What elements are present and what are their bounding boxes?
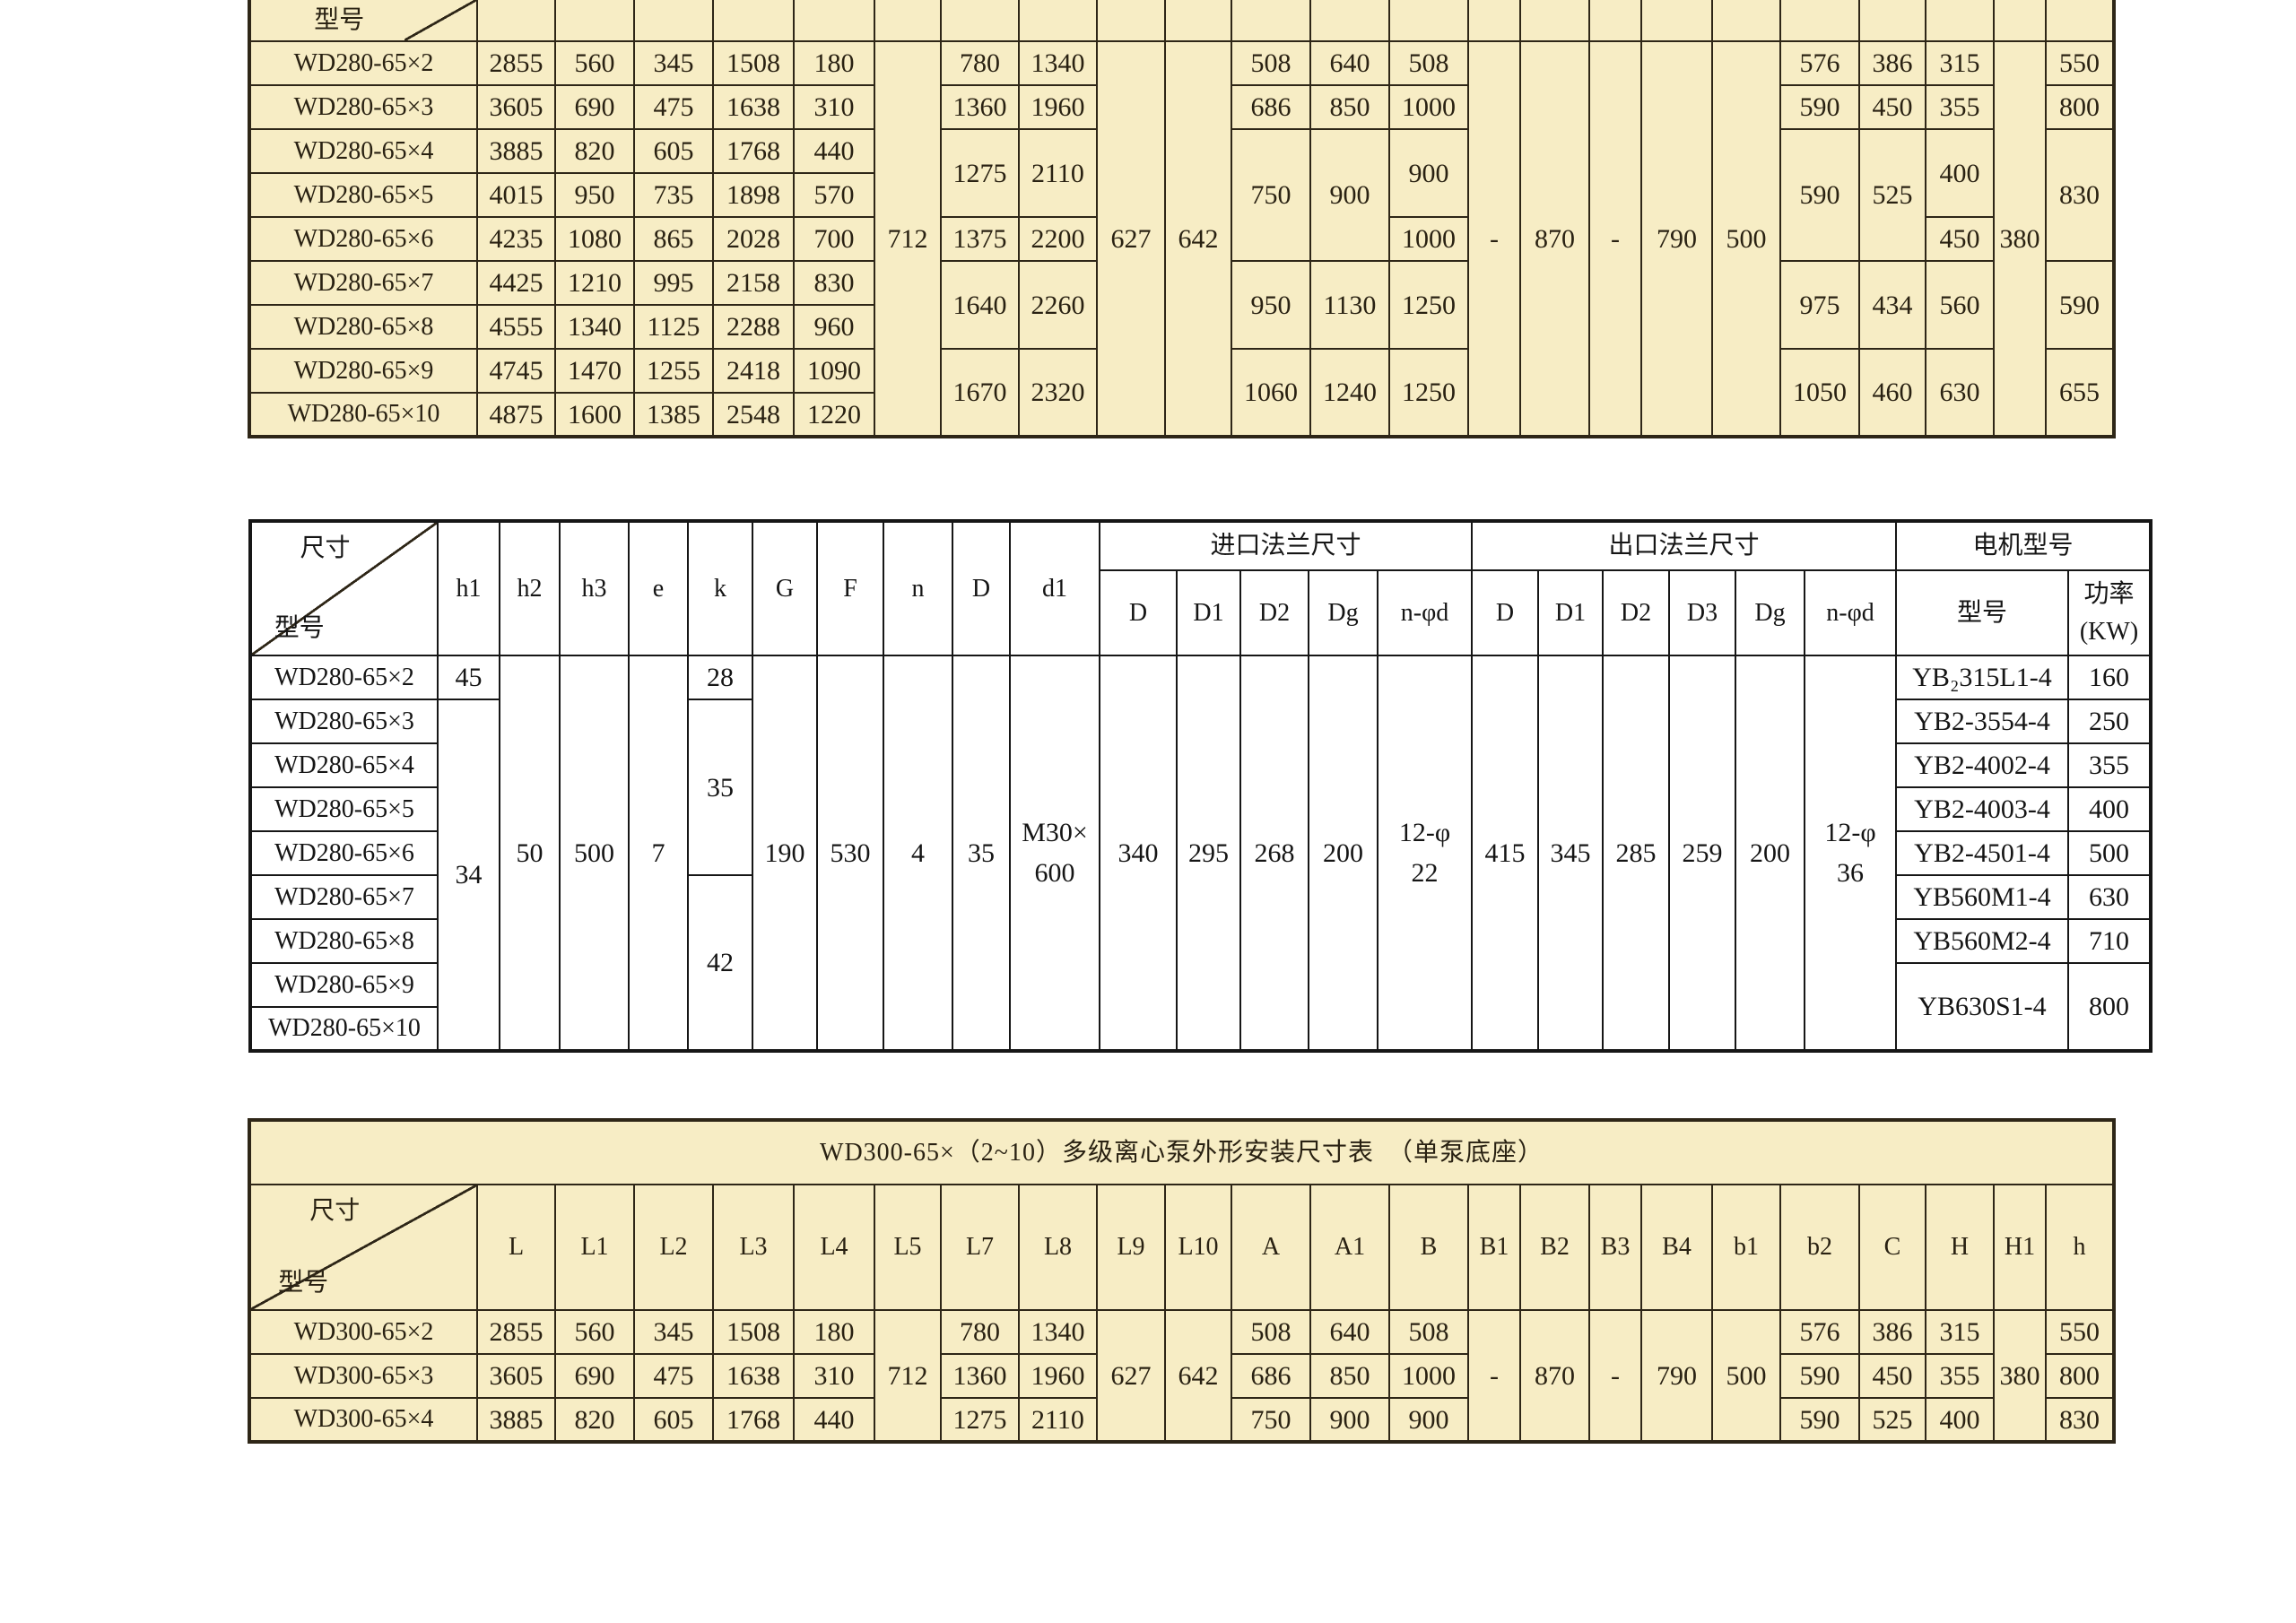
header-cell: Dg — [1309, 570, 1378, 655]
cell: 630 — [2068, 875, 2151, 919]
cell: 450 — [1926, 217, 1994, 261]
cell: 310 — [794, 1354, 874, 1398]
cell: 4 — [883, 655, 952, 1051]
header-cell — [1641, 0, 1712, 41]
cell: 686 — [1231, 85, 1310, 129]
cell: 35 — [952, 655, 1010, 1051]
cell: 550 — [2046, 1310, 2114, 1354]
wd300-outline-table-wrap: WD300-65×（2~10）多级离心泵外形安装尺寸表 （单泵底座）尺寸型号LL… — [248, 1118, 2116, 1444]
cell: 780 — [941, 41, 1019, 85]
cell: YB560M1-4 — [1896, 875, 2068, 919]
cell: 3605 — [477, 85, 555, 129]
cell: 590 — [1780, 1398, 1859, 1442]
header-cell: e — [629, 521, 688, 655]
cell: 2418 — [713, 349, 794, 393]
header-cell: b1 — [1712, 1185, 1780, 1310]
corner-model-label: 型号 — [314, 2, 364, 39]
header-cell — [1310, 0, 1389, 41]
cell: 1255 — [634, 349, 713, 393]
cell: 605 — [634, 129, 713, 173]
cell: 345 — [1538, 655, 1603, 1051]
header-cell: D3 — [1669, 570, 1735, 655]
cell: 830 — [794, 261, 874, 305]
cell: 712 — [874, 1310, 941, 1442]
cell: WD280-65×2 — [250, 655, 438, 699]
cell: 1960 — [1019, 85, 1097, 129]
header-cell: A1 — [1310, 1185, 1389, 1310]
cell: 1960 — [1019, 1354, 1097, 1398]
cell: 386 — [1859, 41, 1926, 85]
header-cell: H1 — [1994, 1185, 2046, 1310]
cell: 3605 — [477, 1354, 555, 1398]
cell: WD300-65×2 — [249, 1310, 477, 1354]
header-cell: C — [1859, 1185, 1926, 1310]
cell: 870 — [1520, 41, 1589, 437]
cell: 900 — [1310, 129, 1389, 261]
cell: 1340 — [1019, 41, 1097, 85]
header-cell — [1926, 0, 1994, 41]
cell: 50 — [500, 655, 560, 1051]
cell: 440 — [794, 129, 874, 173]
cell: 315 — [1926, 1310, 1994, 1354]
cell: 295 — [1177, 655, 1240, 1051]
cell: 950 — [1231, 261, 1310, 349]
header-cell — [1712, 0, 1780, 41]
header-cell: D — [1100, 570, 1177, 655]
corner-size-label: 尺寸 — [300, 530, 351, 568]
cell: 450 — [1859, 85, 1926, 129]
header-cell — [1994, 0, 2046, 41]
cell: WD280-65×9 — [249, 349, 477, 393]
cell: 530 — [817, 655, 883, 1051]
cell: WD280-65×10 — [250, 1007, 438, 1051]
cell: 640 — [1310, 41, 1389, 85]
cell: 160 — [2068, 655, 2151, 699]
cell: 42 — [688, 875, 752, 1051]
cell: 576 — [1780, 41, 1859, 85]
cell: 1640 — [941, 261, 1019, 349]
header-cell — [1165, 0, 1231, 41]
cell: 1000 — [1389, 217, 1468, 261]
header-cell: L9 — [1097, 1185, 1165, 1310]
cell: 259 — [1669, 655, 1735, 1051]
cell: 2855 — [477, 1310, 555, 1354]
cell: 735 — [634, 173, 713, 217]
cell: 475 — [634, 1354, 713, 1398]
header-cell: L — [477, 1185, 555, 1310]
cell: 500 — [1712, 41, 1780, 437]
wd280-dimension-flange-motor-table: 尺寸型号h1h2h3ekGFnDd1进口法兰尺寸出口法兰尺寸电机型号DD1D2D… — [248, 519, 2152, 1053]
cell: 268 — [1240, 655, 1309, 1051]
cell: 4235 — [477, 217, 555, 261]
cell: WD300-65×4 — [249, 1398, 477, 1442]
header-cell: h1 — [438, 521, 500, 655]
cell: 2548 — [713, 393, 794, 437]
cell: 250 — [2068, 699, 2151, 743]
header-cell — [1468, 0, 1520, 41]
header-cell: D2 — [1240, 570, 1309, 655]
cell: 35 — [688, 699, 752, 875]
cell: 315 — [1926, 41, 1994, 85]
cell: 865 — [634, 217, 713, 261]
header-cell: D1 — [1177, 570, 1240, 655]
cell: - — [1468, 1310, 1520, 1442]
cell: 560 — [1926, 261, 1994, 349]
header-cell — [634, 0, 713, 41]
cell: 4015 — [477, 173, 555, 217]
corner-size-label: 尺寸 — [309, 1193, 360, 1230]
cell: 460 — [1859, 349, 1926, 437]
header-cell — [1097, 0, 1165, 41]
corner-header: 尺寸型号 — [249, 1185, 477, 1310]
cell: 590 — [2046, 261, 2114, 349]
header-cell: D — [952, 521, 1010, 655]
header-cell: L7 — [941, 1185, 1019, 1310]
header-cell: G — [752, 521, 817, 655]
cell: 2158 — [713, 261, 794, 305]
cell: 630 — [1926, 349, 1994, 437]
cell: 1125 — [634, 305, 713, 349]
cell: 1060 — [1231, 349, 1310, 437]
cell: YB2-4002-4 — [1896, 743, 2068, 787]
cell: M30× 600 — [1010, 655, 1100, 1051]
cell: 4875 — [477, 393, 555, 437]
cell: 4555 — [477, 305, 555, 349]
cell: 570 — [794, 173, 874, 217]
header-cell: d1 — [1010, 521, 1100, 655]
header-cell: L3 — [713, 1185, 794, 1310]
header-cell: L2 — [634, 1185, 713, 1310]
cell: 1638 — [713, 85, 794, 129]
cell: 1638 — [713, 1354, 794, 1398]
cell: 4425 — [477, 261, 555, 305]
cell: 1250 — [1389, 261, 1468, 349]
cell: 560 — [555, 1310, 634, 1354]
cell: 820 — [555, 129, 634, 173]
cell: 180 — [794, 1310, 874, 1354]
cell: 34 — [438, 699, 500, 1051]
cell: 1000 — [1389, 85, 1468, 129]
cell: 686 — [1231, 1354, 1310, 1398]
diagonal-divider — [404, 0, 476, 40]
cell: 710 — [2068, 919, 2151, 963]
cell: 386 — [1859, 1310, 1926, 1354]
header-cell: h3 — [560, 521, 629, 655]
wd280-outline-table: 型号WD280-65×22855560345150818071278013406… — [248, 0, 2116, 438]
cell: 780 — [941, 1310, 1019, 1354]
header-cell: D — [1472, 570, 1538, 655]
header-cell — [1019, 0, 1097, 41]
header-cell: Dg — [1735, 570, 1805, 655]
cell: 475 — [634, 85, 713, 129]
cell: - — [1589, 41, 1641, 437]
cell: 340 — [1100, 655, 1177, 1051]
wd280-dimension-flange-motor-table-wrap: 尺寸型号h1h2h3ekGFnDd1进口法兰尺寸出口法兰尺寸电机型号DD1D2D… — [248, 519, 2152, 1053]
cell: 355 — [1926, 1354, 1994, 1398]
cell: 605 — [634, 1398, 713, 1442]
cell: YB560M2-4 — [1896, 919, 2068, 963]
cell: 642 — [1165, 41, 1231, 437]
cell: 1240 — [1310, 349, 1389, 437]
cell: 12-φ 36 — [1805, 655, 1896, 1051]
cell: 1375 — [941, 217, 1019, 261]
cell: 790 — [1641, 1310, 1712, 1442]
cell: 950 — [555, 173, 634, 217]
cell: 900 — [1310, 1398, 1389, 1442]
cell: 45 — [438, 655, 500, 699]
cell: 440 — [794, 1398, 874, 1442]
corner-header: 尺寸型号 — [250, 521, 438, 655]
header-cell — [1231, 0, 1310, 41]
header-cell: L10 — [1165, 1185, 1231, 1310]
cell: WD280-65×6 — [250, 831, 438, 875]
cell: 380 — [1994, 41, 2046, 437]
cell: 1340 — [555, 305, 634, 349]
header-cell: B3 — [1589, 1185, 1641, 1310]
cell: WD280-65×8 — [250, 919, 438, 963]
cell: 400 — [2068, 787, 2151, 831]
cell: 1600 — [555, 393, 634, 437]
cell: 2260 — [1019, 261, 1097, 349]
cell: 508 — [1231, 41, 1310, 85]
cell: 355 — [1926, 85, 1994, 129]
cell: 525 — [1859, 1398, 1926, 1442]
cell: 1050 — [1780, 349, 1859, 437]
cell: 900 — [1389, 1398, 1468, 1442]
cell: WD300-65×3 — [249, 1354, 477, 1398]
cell: 508 — [1389, 41, 1468, 85]
header-cell — [874, 0, 941, 41]
header-cell: A — [1231, 1185, 1310, 1310]
cell: 590 — [1780, 129, 1859, 261]
cell: - — [1589, 1310, 1641, 1442]
cell: 7 — [629, 655, 688, 1051]
cell: 1360 — [941, 85, 1019, 129]
cell: 400 — [1926, 129, 1994, 217]
header-cell — [794, 0, 874, 41]
cell: WD280-65×9 — [250, 963, 438, 1007]
cell: WD280-65×3 — [249, 85, 477, 129]
cell: 2855 — [477, 41, 555, 85]
header-cell: L8 — [1019, 1185, 1097, 1310]
header-cell: h — [2046, 1185, 2114, 1310]
cell: 960 — [794, 305, 874, 349]
header-cell: n-φd — [1378, 570, 1472, 655]
header-cell — [1589, 0, 1641, 41]
cell: 3885 — [477, 129, 555, 173]
cell: 200 — [1735, 655, 1805, 1051]
cell: YB₂315L1-4 — [1896, 655, 2068, 699]
header-cell: 电机型号 — [1896, 521, 2151, 570]
cell: 508 — [1389, 1310, 1468, 1354]
cell: 28 — [688, 655, 752, 699]
header-cell — [2046, 0, 2114, 41]
header-cell: L4 — [794, 1185, 874, 1310]
cell: WD280-65×7 — [250, 875, 438, 919]
cell: 1898 — [713, 173, 794, 217]
cell: 870 — [1520, 1310, 1589, 1442]
cell: WD280-65×8 — [249, 305, 477, 349]
cell: 750 — [1231, 1398, 1310, 1442]
header-cell: F — [817, 521, 883, 655]
header-cell — [941, 0, 1019, 41]
cell: 1080 — [555, 217, 634, 261]
document-page: { "colors":{"paper":"#ffffff","table_bei… — [0, 0, 2296, 1623]
cell: 995 — [634, 261, 713, 305]
cell: 642 — [1165, 1310, 1231, 1442]
cell: 1130 — [1310, 261, 1389, 349]
cell: 2288 — [713, 305, 794, 349]
cell: 830 — [2046, 129, 2114, 261]
cell: 345 — [634, 41, 713, 85]
cell: 380 — [1994, 1310, 2046, 1442]
cell: 690 — [555, 1354, 634, 1398]
cell: 1508 — [713, 1310, 794, 1354]
header-cell: B2 — [1520, 1185, 1589, 1310]
corner-header: 型号 — [249, 0, 477, 41]
cell: 500 — [560, 655, 629, 1051]
header-cell: D1 — [1538, 570, 1603, 655]
cell: 345 — [634, 1310, 713, 1354]
header-cell — [477, 0, 555, 41]
cell: 2028 — [713, 217, 794, 261]
cell: WD280-65×5 — [250, 787, 438, 831]
cell: 800 — [2046, 85, 2114, 129]
cell: 750 — [1231, 129, 1310, 261]
cell: 3885 — [477, 1398, 555, 1442]
header-cell — [1780, 0, 1859, 41]
cell: 975 — [1780, 261, 1859, 349]
header-cell: b2 — [1780, 1185, 1859, 1310]
cell: 560 — [555, 41, 634, 85]
header-cell: B — [1389, 1185, 1468, 1310]
cell: 4745 — [477, 349, 555, 393]
cell: 1275 — [941, 1398, 1019, 1442]
cell: 500 — [1712, 1310, 1780, 1442]
cell: 1210 — [555, 261, 634, 305]
cell: 285 — [1603, 655, 1669, 1051]
header-cell: h2 — [500, 521, 560, 655]
cell: 450 — [1859, 1354, 1926, 1398]
cell: 900 — [1389, 129, 1468, 217]
cell: 655 — [2046, 349, 2114, 437]
cell: 640 — [1310, 1310, 1389, 1354]
header-cell — [555, 0, 634, 41]
header-cell — [1520, 0, 1589, 41]
cell: 434 — [1859, 261, 1926, 349]
cell: 1470 — [555, 349, 634, 393]
header-cell — [713, 0, 794, 41]
cell: WD280-65×4 — [250, 743, 438, 787]
cell: 850 — [1310, 85, 1389, 129]
cell: 2200 — [1019, 217, 1097, 261]
header-cell — [1859, 0, 1926, 41]
cell: 190 — [752, 655, 817, 1051]
cell: 590 — [1780, 85, 1859, 129]
wd300-outline-table: WD300-65×（2~10）多级离心泵外形安装尺寸表 （单泵底座）尺寸型号LL… — [248, 1118, 2116, 1444]
cell: 1275 — [941, 129, 1019, 217]
header-cell: B4 — [1641, 1185, 1712, 1310]
cell: 1768 — [713, 129, 794, 173]
cell: 415 — [1472, 655, 1538, 1051]
cell: 790 — [1641, 41, 1712, 437]
cell: 200 — [1309, 655, 1378, 1051]
cell: 355 — [2068, 743, 2151, 787]
header-cell: L5 — [874, 1185, 941, 1310]
cell: 576 — [1780, 1310, 1859, 1354]
cell: 12-φ 22 — [1378, 655, 1472, 1051]
cell: WD280-65×7 — [249, 261, 477, 305]
cell: 1000 — [1389, 1354, 1468, 1398]
cell: WD280-65×5 — [249, 173, 477, 217]
cell: 800 — [2046, 1354, 2114, 1398]
cell: 850 — [1310, 1354, 1389, 1398]
cell: - — [1468, 41, 1520, 437]
cell: 310 — [794, 85, 874, 129]
cell: 500 — [2068, 831, 2151, 875]
cell: 590 — [1780, 1354, 1859, 1398]
header-cell: n — [883, 521, 952, 655]
cell: 1090 — [794, 349, 874, 393]
cell: 1220 — [794, 393, 874, 437]
header-cell: B1 — [1468, 1185, 1520, 1310]
cell: WD280-65×10 — [249, 393, 477, 437]
cell: 1340 — [1019, 1310, 1097, 1354]
header-cell: 出口法兰尺寸 — [1472, 521, 1896, 570]
cell: YB2-4501-4 — [1896, 831, 2068, 875]
cell: 2110 — [1019, 1398, 1097, 1442]
header-cell: 型号 — [1896, 570, 2068, 655]
corner-model-label: 型号 — [274, 610, 325, 647]
cell: 550 — [2046, 41, 2114, 85]
cell: 830 — [2046, 1398, 2114, 1442]
cell: 800 — [2068, 963, 2151, 1051]
cell: YB630S1-4 — [1896, 963, 2068, 1051]
cell: WD280-65×4 — [249, 129, 477, 173]
header-cell: 功率 (KW) — [2068, 570, 2151, 655]
cell: 627 — [1097, 1310, 1165, 1442]
cell: 400 — [1926, 1398, 1994, 1442]
header-cell: n-φd — [1805, 570, 1896, 655]
cell: 525 — [1859, 129, 1926, 261]
cell: 1768 — [713, 1398, 794, 1442]
header-cell: L1 — [555, 1185, 634, 1310]
cell: 1508 — [713, 41, 794, 85]
header-cell: 进口法兰尺寸 — [1100, 521, 1472, 570]
header-cell — [1389, 0, 1468, 41]
cell: YB2-3554-4 — [1896, 699, 2068, 743]
cell: 1670 — [941, 349, 1019, 437]
cell: 1385 — [634, 393, 713, 437]
cell: 2320 — [1019, 349, 1097, 437]
wd280-outline-table-wrap: 型号WD280-65×22855560345150818071278013406… — [248, 0, 2116, 438]
cell: 180 — [794, 41, 874, 85]
cell: 712 — [874, 41, 941, 437]
cell: 700 — [794, 217, 874, 261]
table-title: WD300-65×（2~10）多级离心泵外形安装尺寸表 （单泵底座） — [249, 1120, 2114, 1185]
cell: 1250 — [1389, 349, 1468, 437]
cell: 2110 — [1019, 129, 1097, 217]
corner-model-label: 型号 — [278, 1264, 328, 1302]
cell: 627 — [1097, 41, 1165, 437]
cell: 690 — [555, 85, 634, 129]
cell: WD280-65×6 — [249, 217, 477, 261]
header-cell: H — [1926, 1185, 1994, 1310]
cell: 1360 — [941, 1354, 1019, 1398]
cell: WD280-65×3 — [250, 699, 438, 743]
cell: 820 — [555, 1398, 634, 1442]
cell: 508 — [1231, 1310, 1310, 1354]
